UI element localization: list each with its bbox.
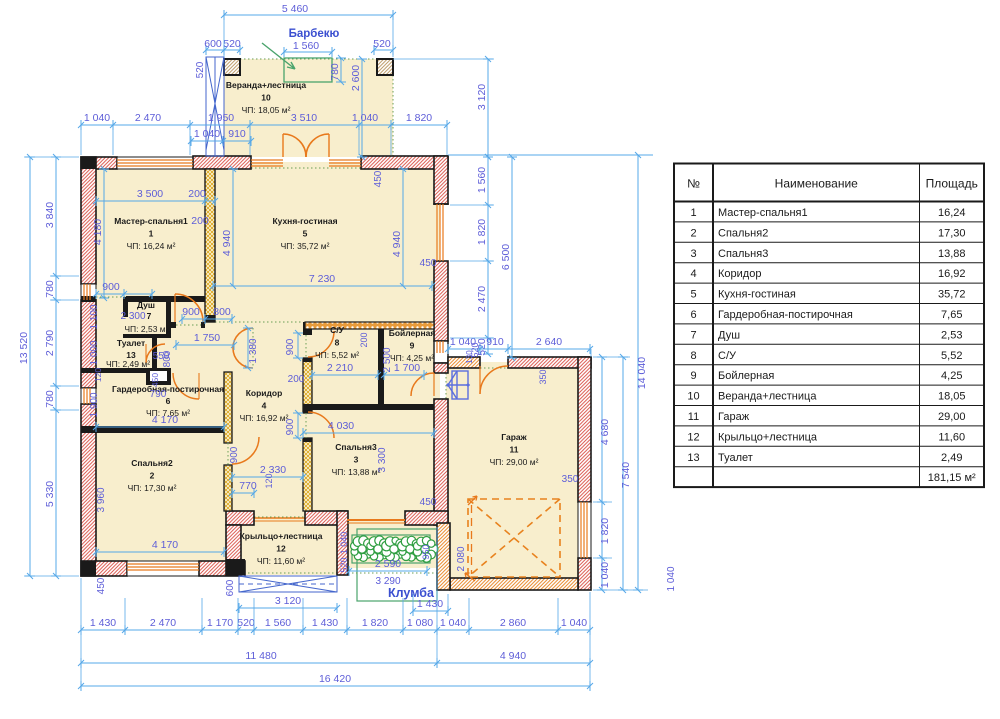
svg-text:1 080: 1 080: [407, 617, 433, 629]
svg-text:С/У: С/У: [330, 325, 345, 335]
svg-text:2 210: 2 210: [327, 362, 353, 374]
svg-text:ЧП: 5,52 м²: ЧП: 5,52 м²: [315, 350, 359, 360]
svg-text:4 170: 4 170: [152, 539, 178, 551]
svg-text:Спальня3: Спальня3: [335, 442, 377, 452]
svg-text:Бойлерная: Бойлерная: [718, 370, 774, 382]
svg-text:11,60: 11,60: [938, 431, 965, 443]
svg-text:520: 520: [223, 38, 241, 50]
svg-text:Коридор: Коридор: [718, 268, 761, 280]
svg-text:ЧП: 2,53 м: ЧП: 2,53 м: [124, 324, 165, 334]
svg-text:1 040: 1 040: [339, 532, 349, 555]
svg-text:600: 600: [225, 579, 236, 596]
svg-text:2: 2: [150, 471, 155, 481]
svg-text:790: 790: [150, 389, 167, 400]
svg-text:4 170: 4 170: [152, 414, 178, 426]
svg-text:520: 520: [339, 557, 349, 572]
svg-text:ЧП: 2,49 м²: ЧП: 2,49 м²: [106, 359, 150, 369]
svg-text:12: 12: [687, 431, 699, 443]
svg-text:4 180: 4 180: [92, 219, 104, 245]
svg-text:Гардеробная-постирочная: Гардеробная-постирочная: [112, 384, 224, 394]
svg-text:4 030: 4 030: [328, 420, 354, 432]
svg-text:130: 130: [465, 350, 474, 364]
svg-text:2,53: 2,53: [941, 329, 962, 341]
svg-text:900: 900: [285, 338, 296, 355]
svg-text:ЧП: 29,00 м²: ЧП: 29,00 м²: [490, 457, 539, 467]
svg-text:450: 450: [150, 373, 160, 387]
svg-text:520: 520: [195, 61, 206, 78]
svg-text:3 290: 3 290: [375, 576, 400, 587]
svg-text:3 510: 3 510: [291, 112, 317, 124]
svg-text:1 560: 1 560: [476, 167, 488, 193]
svg-text:2 600: 2 600: [350, 65, 362, 91]
svg-text:Спальня3: Спальня3: [718, 248, 768, 260]
svg-text:Веранда+лестница: Веранда+лестница: [718, 391, 817, 403]
svg-text:2 640: 2 640: [536, 336, 562, 348]
svg-text:9: 9: [690, 370, 696, 382]
svg-text:450: 450: [420, 258, 437, 269]
svg-text:1 820: 1 820: [362, 617, 388, 629]
svg-text:900: 900: [229, 446, 240, 463]
svg-text:Коридор: Коридор: [246, 388, 283, 398]
svg-text:1 170: 1 170: [207, 617, 233, 629]
svg-text:1 380: 1 380: [248, 338, 259, 363]
svg-text:2 470: 2 470: [476, 286, 488, 312]
svg-text:200: 200: [359, 332, 369, 347]
svg-text:Гардеробная-постирочная: Гардеробная-постирочная: [718, 309, 853, 321]
svg-text:29,00: 29,00: [938, 411, 966, 423]
svg-text:Кухня-гостиная: Кухня-гостиная: [272, 216, 337, 226]
svg-text:3: 3: [354, 455, 359, 465]
svg-text:4 940: 4 940: [391, 231, 403, 257]
svg-text:7,65: 7,65: [941, 309, 962, 321]
svg-text:3: 3: [690, 248, 696, 260]
svg-text:11 480: 11 480: [245, 650, 276, 662]
svg-text:520: 520: [237, 617, 255, 629]
svg-text:8: 8: [690, 350, 696, 362]
svg-text:5: 5: [303, 229, 308, 239]
svg-text:1 040: 1 040: [440, 617, 466, 629]
svg-text:1 000: 1 000: [89, 340, 100, 365]
svg-text:10: 10: [261, 93, 271, 103]
svg-text:900: 900: [102, 281, 120, 293]
svg-text:200: 200: [191, 215, 209, 227]
svg-text:6: 6: [166, 396, 171, 406]
svg-text:Кухня-гостиная: Кухня-гостиная: [718, 289, 796, 301]
svg-text:7 540: 7 540: [620, 462, 632, 488]
svg-text:1 900: 1 900: [89, 392, 100, 417]
svg-text:4 940: 4 940: [500, 650, 526, 662]
svg-text:Бойлерная: Бойлерная: [389, 328, 436, 338]
svg-text:16,24: 16,24: [938, 207, 966, 219]
svg-text:450: 450: [373, 170, 384, 187]
svg-text:16,92: 16,92: [938, 268, 966, 280]
svg-text:7: 7: [690, 329, 696, 341]
svg-text:3 500: 3 500: [137, 188, 163, 200]
svg-text:6: 6: [690, 309, 696, 321]
svg-text:Гараж: Гараж: [718, 411, 750, 423]
svg-text:№: №: [687, 177, 700, 191]
svg-text:Душ: Душ: [137, 300, 155, 310]
svg-text:2 860: 2 860: [500, 617, 526, 629]
svg-text:600: 600: [204, 38, 222, 50]
svg-text:13,88: 13,88: [938, 248, 966, 260]
svg-text:1 040: 1 040: [352, 112, 378, 124]
svg-text:1 040: 1 040: [561, 617, 587, 629]
svg-text:ЧП: 35,72 м²: ЧП: 35,72 м²: [281, 241, 330, 251]
svg-text:450: 450: [96, 577, 107, 594]
svg-text:1 700: 1 700: [394, 362, 420, 374]
svg-text:200: 200: [288, 374, 305, 385]
svg-text:1 560: 1 560: [265, 617, 291, 629]
svg-text:800: 800: [213, 306, 231, 318]
svg-text:1 820: 1 820: [476, 219, 488, 245]
svg-text:13: 13: [687, 452, 699, 464]
svg-text:1 750: 1 750: [194, 332, 220, 344]
svg-text:ЧП: 16,24 м²: ЧП: 16,24 м²: [127, 241, 176, 251]
svg-text:1 560: 1 560: [293, 40, 319, 52]
svg-text:Душ: Душ: [718, 329, 740, 341]
svg-text:4: 4: [262, 401, 267, 411]
svg-text:3 960: 3 960: [96, 487, 107, 512]
svg-text:520: 520: [373, 38, 391, 50]
svg-text:10: 10: [687, 391, 699, 403]
svg-text:770: 770: [239, 480, 257, 492]
svg-text:Спальня2: Спальня2: [131, 458, 173, 468]
svg-text:2 470: 2 470: [135, 112, 161, 124]
svg-text:3 300: 3 300: [377, 447, 388, 472]
svg-text:3 120: 3 120: [476, 84, 488, 110]
svg-text:7 230: 7 230: [309, 273, 335, 285]
svg-text:1 430: 1 430: [312, 617, 338, 629]
svg-text:6 500: 6 500: [500, 244, 512, 270]
svg-text:35,72: 35,72: [938, 289, 966, 301]
svg-text:5 330: 5 330: [44, 481, 56, 507]
svg-text:ЧП: 16,92 м²: ЧП: 16,92 м²: [240, 413, 289, 423]
svg-text:Барбекю: Барбекю: [289, 28, 340, 40]
svg-text:1 430: 1 430: [417, 598, 443, 610]
svg-text:9: 9: [410, 341, 415, 351]
svg-text:1: 1: [690, 207, 696, 219]
svg-text:Веранда+лестница: Веранда+лестница: [226, 80, 306, 90]
svg-text:16 420: 16 420: [319, 673, 351, 685]
svg-text:2: 2: [690, 227, 696, 239]
svg-text:Мастер-спальня1: Мастер-спальня1: [114, 216, 188, 226]
svg-text:4,25: 4,25: [941, 370, 962, 382]
svg-text:ЧП: 18,05 м²: ЧП: 18,05 м²: [242, 105, 291, 115]
svg-text:2 500: 2 500: [382, 347, 393, 372]
svg-text:3 120: 3 120: [275, 595, 301, 607]
svg-text:900: 900: [182, 306, 200, 318]
svg-text:900: 900: [285, 418, 296, 435]
svg-text:200: 200: [188, 188, 206, 200]
svg-text:1 040: 1 040: [666, 566, 677, 591]
svg-text:14 040: 14 040: [636, 357, 648, 389]
svg-text:550: 550: [153, 351, 170, 362]
svg-text:1 100: 1 100: [89, 304, 100, 329]
svg-text:Спальня2: Спальня2: [718, 227, 768, 239]
svg-text:Мастер-спальня1: Мастер-спальня1: [718, 207, 808, 219]
svg-text:120: 120: [93, 368, 103, 382]
svg-text:11: 11: [688, 411, 699, 423]
svg-text:4 940: 4 940: [221, 230, 233, 256]
svg-text:4 680: 4 680: [599, 419, 611, 445]
svg-text:2,49: 2,49: [941, 452, 962, 464]
svg-text:1 040: 1 040: [84, 112, 110, 124]
svg-text:Гараж: Гараж: [501, 432, 527, 442]
svg-text:1 950: 1 950: [208, 112, 234, 124]
svg-text:1 040: 1 040: [599, 562, 611, 588]
svg-text:1 820: 1 820: [599, 518, 611, 544]
svg-text:181,15 м²: 181,15 м²: [928, 472, 976, 484]
svg-text:350: 350: [562, 474, 579, 485]
svg-text:1 820: 1 820: [406, 112, 432, 124]
svg-text:Наименование: Наименование: [775, 177, 859, 191]
svg-text:780: 780: [329, 63, 341, 81]
svg-text:2 470: 2 470: [150, 617, 176, 629]
svg-text:350: 350: [538, 369, 548, 384]
svg-text:8: 8: [335, 338, 340, 348]
svg-text:5 460: 5 460: [282, 3, 308, 15]
svg-text:Крыльцо+лестница: Крыльцо+лестница: [240, 531, 323, 541]
svg-text:Площадь: Площадь: [926, 177, 978, 191]
svg-text:5: 5: [690, 289, 696, 301]
svg-text:11: 11: [510, 445, 519, 455]
svg-text:ЧП: 13,88 м²: ЧП: 13,88 м²: [332, 467, 381, 477]
svg-text:Туалет: Туалет: [117, 338, 145, 348]
svg-text:950: 950: [421, 544, 431, 559]
svg-text:780: 780: [44, 390, 56, 408]
svg-text:Крыльцо+лестница: Крыльцо+лестница: [718, 431, 818, 443]
svg-text:2 080: 2 080: [456, 546, 467, 571]
svg-text:С/У: С/У: [718, 350, 737, 362]
svg-text:910: 910: [228, 128, 246, 140]
svg-text:5,52: 5,52: [941, 350, 962, 362]
svg-text:17,30: 17,30: [938, 227, 966, 239]
svg-text:2 790: 2 790: [44, 330, 56, 356]
svg-text:18,05: 18,05: [938, 391, 966, 403]
svg-text:7: 7: [147, 311, 152, 321]
svg-text:ЧП: 11,60 м²: ЧП: 11,60 м²: [257, 556, 305, 566]
svg-text:1 040: 1 040: [194, 128, 220, 140]
svg-text:1: 1: [149, 229, 154, 239]
svg-text:2 590: 2 590: [375, 558, 401, 570]
svg-text:1 430: 1 430: [90, 617, 116, 629]
svg-text:2 300: 2 300: [120, 311, 145, 322]
svg-text:120: 120: [264, 473, 274, 488]
svg-text:Туалет: Туалет: [718, 452, 753, 464]
svg-text:3 840: 3 840: [44, 202, 56, 228]
svg-text:12: 12: [276, 544, 286, 554]
svg-text:450: 450: [420, 497, 437, 508]
svg-text:4: 4: [690, 268, 696, 280]
svg-text:780: 780: [44, 280, 56, 298]
svg-text:13 520: 13 520: [18, 332, 30, 364]
svg-text:ЧП: 17,30 м²: ЧП: 17,30 м²: [128, 483, 177, 493]
